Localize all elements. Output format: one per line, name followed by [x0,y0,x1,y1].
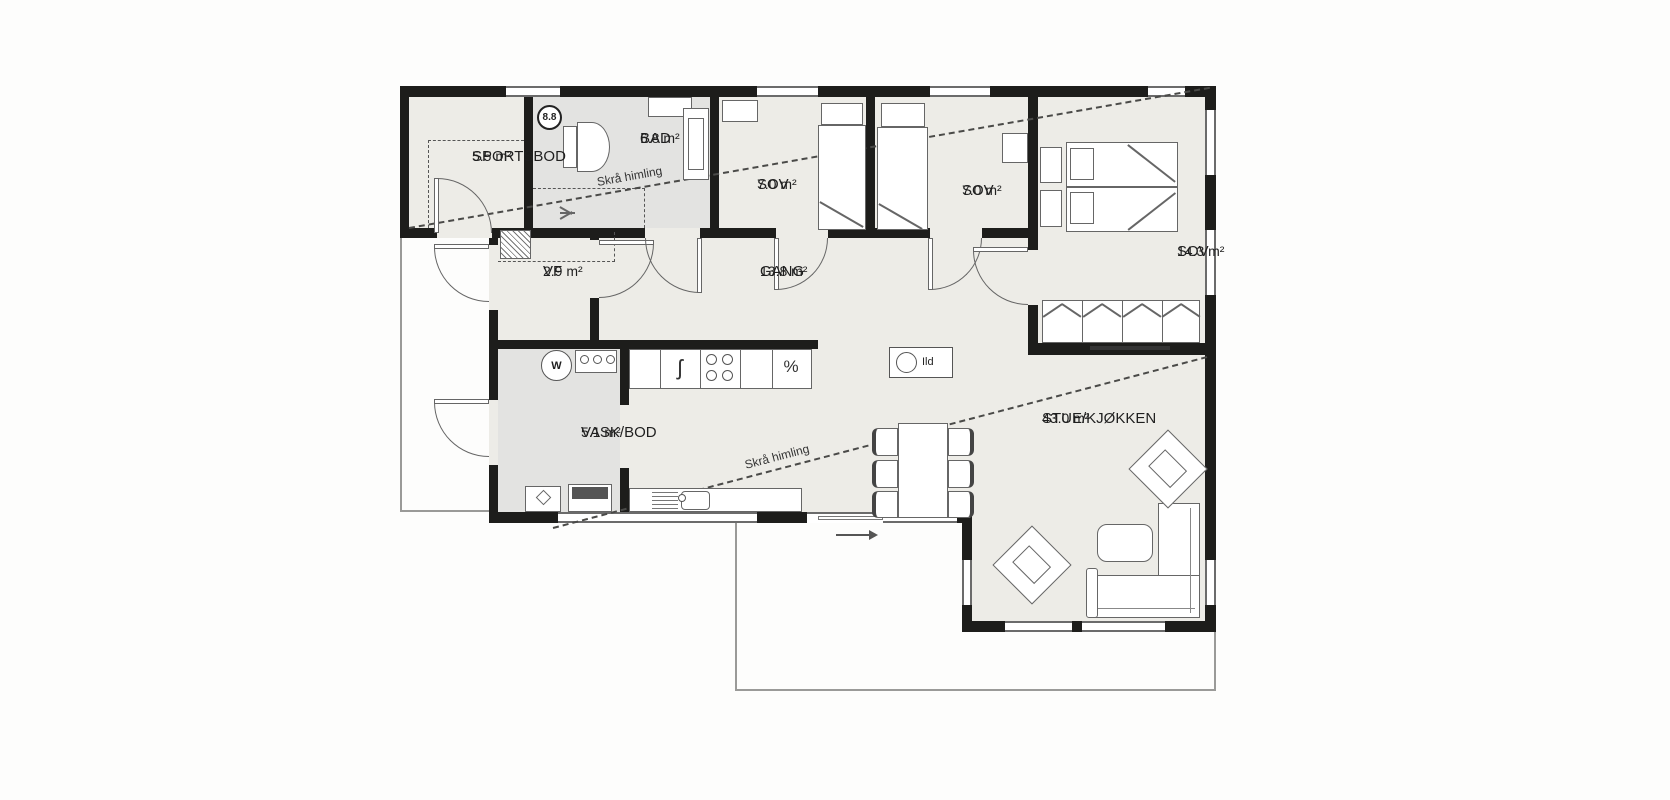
wardrobe-divider [1162,300,1163,343]
window-stue-bottom-1 [1005,621,1072,632]
fireplace-label: Ild [922,356,934,368]
measure-marker-badge: 8.8 [537,105,562,130]
armchair-seat [1012,545,1051,584]
sov2-bed [877,127,928,230]
wardrobe-divider [1122,300,1123,343]
door-leaf-sportsbod [434,178,439,233]
sofa-section-horizontal [1093,575,1200,618]
door-leaf-sov3 [973,247,1028,252]
vf-closet [500,230,531,259]
dining-table [898,423,948,518]
door-gap-sov3 [1028,250,1038,305]
wall-vask-lower [620,468,629,512]
armchair-seat [1148,449,1187,488]
measure-marker-value: 8.8 [543,112,557,123]
door-gap-entry [489,245,498,310]
dining-chair [948,428,974,456]
door-leaf-vask-exterior [434,399,489,404]
wall-sov3-left-lower [1028,302,1038,355]
room-area: 43.0 m² [1042,410,1089,427]
laundry-unit-dial [606,355,615,364]
window-stue-bottom-2 [1082,621,1165,632]
counter-divider [700,349,701,389]
wall-bad-sov1 [710,97,719,228]
door-gap-sov2 [930,228,982,238]
sofa-back-line [1098,608,1195,609]
fireplace-flue-icon [896,352,917,373]
sov1-headboard [821,103,863,125]
wall-left-upper [400,86,409,238]
washing-machine-icon: W [541,350,572,381]
terrace-outline-left [735,522,737,690]
mattress-divider [1066,186,1178,188]
counter-divider [660,349,661,389]
wardrobe-divider [1082,300,1083,343]
room-area: 6.8 m² [640,130,680,147]
window-sov3-right-2 [1205,230,1216,295]
window-sov3-right-1 [1205,110,1216,175]
door-gap-vask-exterior [489,400,498,465]
laundry-unit-dial [580,355,589,364]
dining-chair [872,428,898,456]
window-step-wall [962,560,972,605]
dashed-zone-bad [533,188,645,228]
faucet-icon [678,494,686,502]
pillow [1070,192,1094,224]
floor-plan-canvas: 8.8 ʃ % W Ild [0,0,1670,800]
sliding-direction-arrow [836,534,870,536]
porch-outline-bottom [400,510,489,512]
fridge-icon: ʃ [666,355,694,381]
sink-drainboard [652,492,678,509]
cooktop-burner-icon [722,370,733,381]
room-area: 2.9 m² [543,263,583,280]
window-sov2-top [930,86,990,97]
wall-sov1-sov2 [866,97,875,228]
sofa-armrest [1086,568,1098,618]
coffee-table [1097,524,1153,562]
door-arc-entry [434,247,489,302]
porch-outline-left [400,238,402,512]
cooktop-burner-icon [722,354,733,365]
kitchen-sink-basin [681,491,710,510]
door-leaf-entry [434,244,489,249]
dining-chair [872,491,898,518]
window-kitchen-bottom [632,512,757,523]
sov1-shelf [722,100,758,122]
dishwasher-icon: % [776,357,806,377]
wall-kitchen-north [498,340,818,349]
window-stue-right [1205,560,1216,605]
dining-chair [948,491,974,518]
terrace-outline-right [1214,632,1216,690]
counter-divider [740,349,741,389]
window-sov1-top [757,86,818,97]
room-area: 13.8 m² [760,263,807,280]
room-area: 14.3 m² [1177,243,1224,260]
washing-machine-letter: W [551,360,561,372]
sov2-headboard [881,103,925,127]
sliding-direction-arrowhead [869,530,878,540]
room-area: 5.1 m² [581,424,621,441]
terrace-outline-bottom [735,689,1216,691]
wall-vask-upper [620,349,629,405]
door-leaf-sov2 [928,238,933,290]
room-area: 7.0 m² [757,176,797,193]
door-gap-bad [645,228,700,238]
sliding-door-sov3 [1090,346,1170,350]
dining-chair [872,460,898,488]
room-area: 7.0 m² [962,182,1002,199]
sov3-nightstand [1040,147,1062,183]
sov3-nightstand [1040,190,1062,227]
counter-divider [772,349,773,389]
laundry-sink-basin [572,487,608,499]
pillow [1070,148,1094,180]
door-arc-vask-exterior [434,402,489,457]
cooktop-burner-icon [706,354,717,365]
laundry-unit-dial [593,355,602,364]
cooktop-burner-icon [706,370,717,381]
sofa-back-line [1190,508,1191,613]
window-bad-top [506,86,560,97]
door-leaf-bad [697,238,702,293]
room-area: 5.5 m² [472,148,512,165]
shower-unit-inner [688,118,704,170]
dining-chair [948,460,974,488]
sov2-desk [1002,133,1028,163]
